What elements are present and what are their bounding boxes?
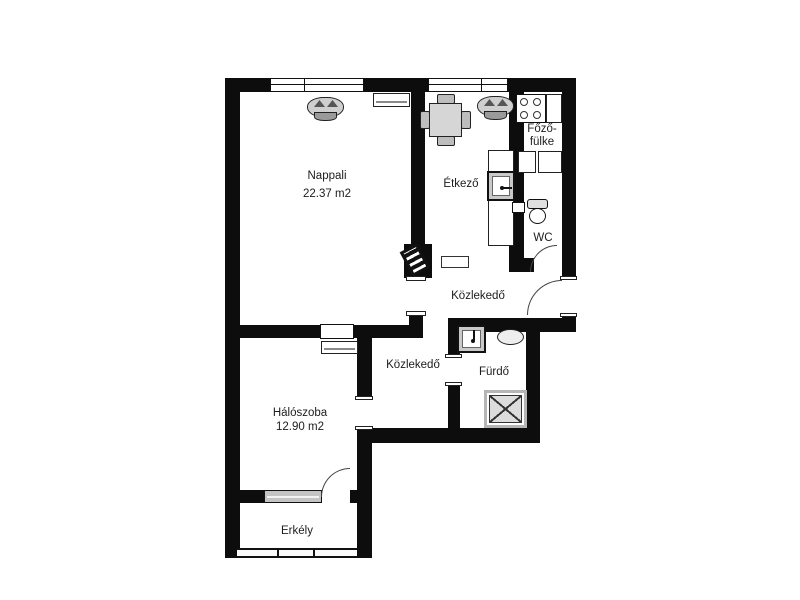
lamp-base [314, 112, 336, 121]
room-name: Hálószoba [273, 407, 327, 419]
balcony-door-arc [321, 468, 350, 497]
window-divider [304, 79, 305, 91]
door-jamb [560, 276, 577, 280]
room-name-line1: Főző- [527, 123, 556, 135]
chair-icon [461, 111, 471, 129]
wall-hall2-south [357, 428, 540, 443]
window-pane-line [429, 84, 507, 85]
burner-icon [533, 111, 541, 119]
window-balcony [264, 490, 322, 503]
window-etkezo [428, 78, 508, 92]
lamp-shade-icon [314, 100, 325, 107]
room-area-haloszoba: 12.90 m2 [258, 421, 342, 434]
lamp-base [484, 111, 506, 120]
door-jamb [445, 382, 462, 386]
kitchen-counter [546, 94, 562, 123]
room-label-etkezo: Étkező [426, 178, 496, 191]
faucet-line [503, 187, 512, 189]
room-name-line2: fülke [530, 136, 554, 148]
dining-table-icon [429, 103, 462, 137]
window-interior-bedroom [320, 324, 354, 339]
room-name: Erkély [281, 525, 313, 537]
door-jamb [355, 426, 373, 430]
room-label-nappali: Nappali [282, 170, 372, 183]
door-jamb [445, 354, 462, 358]
room-name: Étkező [443, 178, 478, 190]
shower-icon [484, 390, 527, 428]
room-name: WC [533, 232, 552, 244]
room-label-haloszoba: Hálószoba [258, 407, 342, 420]
room-area: 22.37 m2 [303, 188, 351, 200]
ceiling-lamp-icon [477, 96, 514, 117]
chair-icon [437, 94, 455, 104]
entrance-door-arc [527, 280, 562, 315]
room-label-wc: WC [527, 232, 559, 245]
radiator-line [376, 101, 407, 103]
room-label-kozlekedo-lower: Közlekedő [377, 359, 449, 372]
wall-bath-east [526, 332, 540, 430]
radiator-icon [373, 93, 410, 107]
room-name: Fürdő [479, 366, 509, 378]
room-area-nappali: 22.37 m2 [282, 188, 372, 201]
room-label-furdo: Fürdő [468, 366, 520, 379]
wall-bedroom-south-left [238, 490, 264, 503]
room-label-erkely: Erkély [262, 525, 332, 538]
wall-right-upper [562, 78, 576, 279]
ceiling-lamp-icon [307, 97, 344, 118]
lamp-shade-icon [327, 100, 338, 107]
room-name: Közlekedő [386, 359, 440, 371]
stove-icon [516, 94, 546, 123]
floor-plan: Nappali 22.37 m2 Étkező Főző- fülke WC K… [0, 0, 800, 600]
window-nappali [270, 78, 364, 92]
room-name: Nappali [308, 170, 347, 182]
lamp-shade-icon [497, 99, 508, 106]
shower-tray [489, 395, 522, 423]
bathroom-sink-icon [457, 325, 486, 353]
room-name: Közlekedő [451, 290, 505, 302]
threshold-etkezo-hall [441, 256, 469, 268]
door-jamb [406, 276, 426, 281]
balcony-railing [237, 548, 357, 558]
room-label-fozofulke: Főző- fülke [520, 123, 564, 149]
kitchen-counter [518, 151, 536, 173]
burner-icon [533, 98, 541, 106]
window-balcony-line [267, 496, 319, 498]
faucet-line [473, 330, 475, 340]
toilet-bowl-icon [529, 208, 546, 224]
washbasin-oval-icon [497, 329, 524, 345]
window-pane-line [271, 84, 363, 85]
wall-bedroom-south-right [350, 490, 372, 503]
burner-icon [520, 98, 528, 106]
door-opening-bedroom [357, 398, 372, 428]
door-jamb [406, 311, 426, 316]
door-jamb [560, 313, 577, 317]
wc-door-arc [530, 245, 557, 272]
wall-left [225, 78, 240, 558]
door-opening-entrance [562, 279, 576, 314]
burner-icon [520, 111, 528, 119]
room-area: 12.90 m2 [276, 421, 324, 433]
chair-icon [420, 111, 430, 129]
railing-post [277, 550, 279, 556]
radiator-line [324, 348, 355, 350]
lamp-shade-icon [484, 99, 495, 106]
wc-hand-basin-icon [512, 202, 525, 213]
railing-post [313, 550, 315, 556]
wall-bath-west-lower [448, 384, 460, 430]
door-opening-bathroom [448, 356, 460, 384]
wall-bedroom-top-right [354, 325, 422, 338]
door-jamb [355, 396, 373, 400]
wall-bedroom-east-upper [357, 338, 372, 398]
wall-bedroom-top-left [238, 325, 320, 338]
chair-icon [437, 136, 455, 146]
kitchen-counter [538, 151, 562, 173]
room-label-kozlekedo-upper: Közlekedő [442, 290, 514, 303]
radiator-icon [321, 341, 358, 354]
window-divider [481, 79, 482, 91]
